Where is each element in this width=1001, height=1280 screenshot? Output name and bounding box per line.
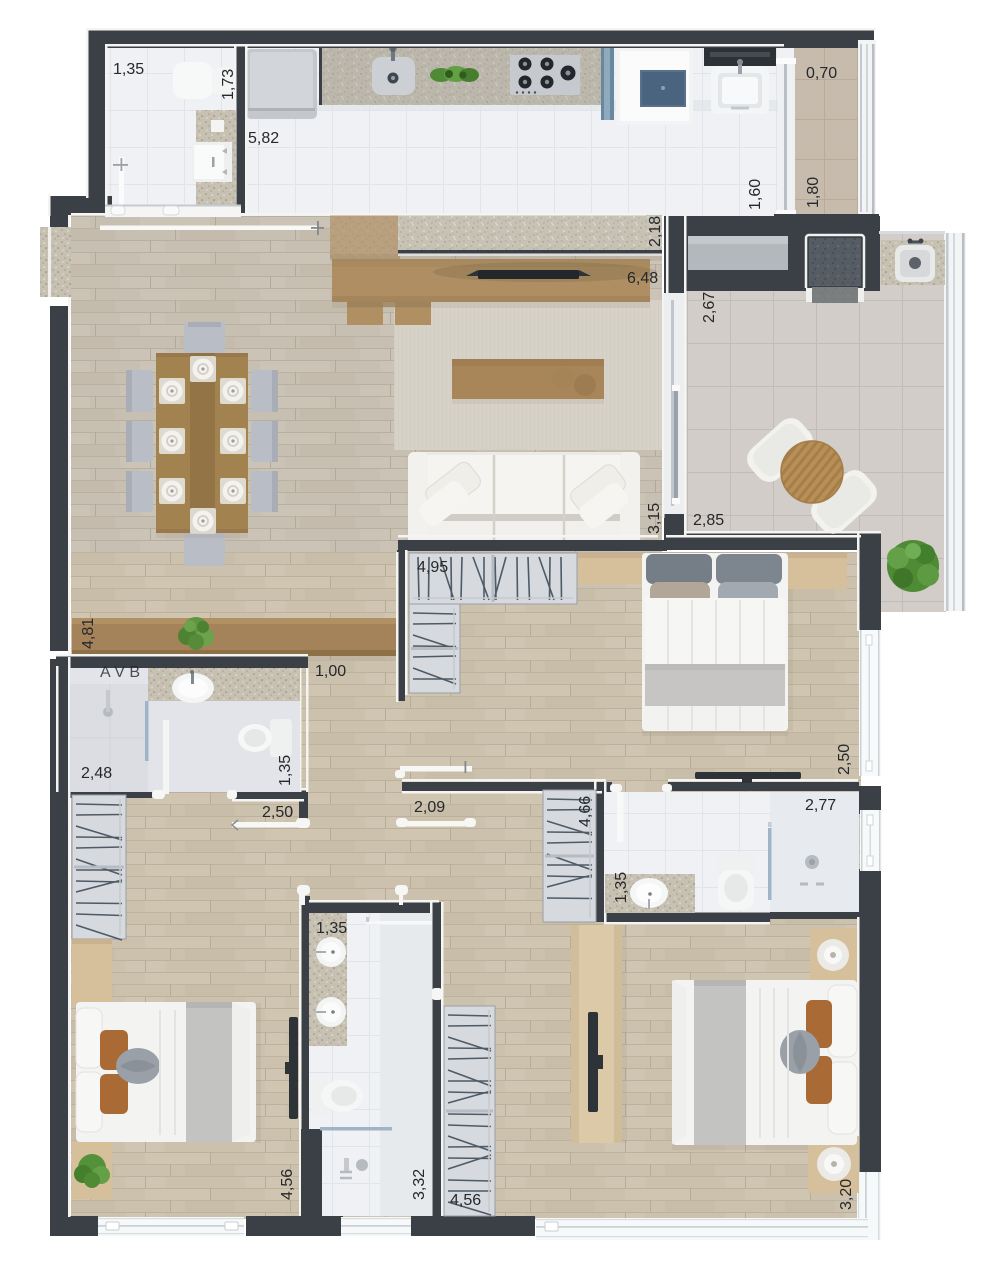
svg-text:1,35: 1,35 (316, 920, 347, 937)
svg-text:4,81: 4,81 (80, 618, 97, 649)
svg-text:2,85: 2,85 (693, 512, 724, 529)
svg-text:4,95: 4,95 (417, 559, 448, 576)
svg-text:2,67: 2,67 (701, 292, 718, 323)
svg-text:3,32: 3,32 (411, 1169, 428, 1200)
svg-text:2,77: 2,77 (805, 797, 836, 814)
svg-text:2,18: 2,18 (647, 216, 664, 247)
svg-text:1,35: 1,35 (113, 61, 144, 78)
svg-text:1,35: 1,35 (277, 755, 294, 786)
svg-text:6,48: 6,48 (627, 270, 658, 287)
svg-text:4,56: 4,56 (450, 1192, 481, 1209)
svg-text:5,82: 5,82 (248, 130, 279, 147)
svg-text:4,66: 4,66 (577, 796, 594, 827)
svg-text:2,09: 2,09 (414, 799, 445, 816)
svg-text:1,35: 1,35 (613, 872, 630, 903)
svg-text:2,50: 2,50 (836, 744, 853, 775)
svg-text:2,48: 2,48 (81, 765, 112, 782)
svg-text:0,70: 0,70 (806, 65, 837, 82)
svg-text:3,20: 3,20 (838, 1179, 855, 1210)
svg-text:A V B: A V B (100, 664, 140, 681)
svg-text:1,80: 1,80 (805, 177, 822, 208)
svg-text:1,00: 1,00 (315, 663, 346, 680)
svg-text:4,56: 4,56 (279, 1169, 296, 1200)
svg-text:2,50: 2,50 (262, 804, 293, 821)
svg-text:1,60: 1,60 (747, 179, 764, 210)
svg-text:1,73: 1,73 (220, 69, 237, 100)
svg-text:3,15: 3,15 (646, 503, 663, 534)
